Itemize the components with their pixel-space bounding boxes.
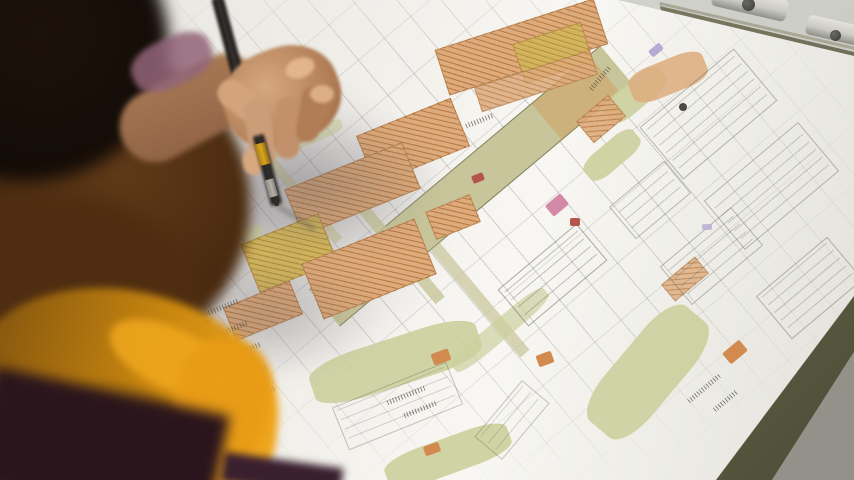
knuckle-highlight-2 — [310, 85, 334, 103]
accent-mark-red-1 — [570, 218, 580, 226]
accent-mark-lavender-2 — [702, 224, 712, 230]
photo-drafting-scene — [0, 0, 854, 480]
plan-ink-dot — [679, 103, 687, 111]
rail-clamp-knob — [830, 30, 841, 41]
